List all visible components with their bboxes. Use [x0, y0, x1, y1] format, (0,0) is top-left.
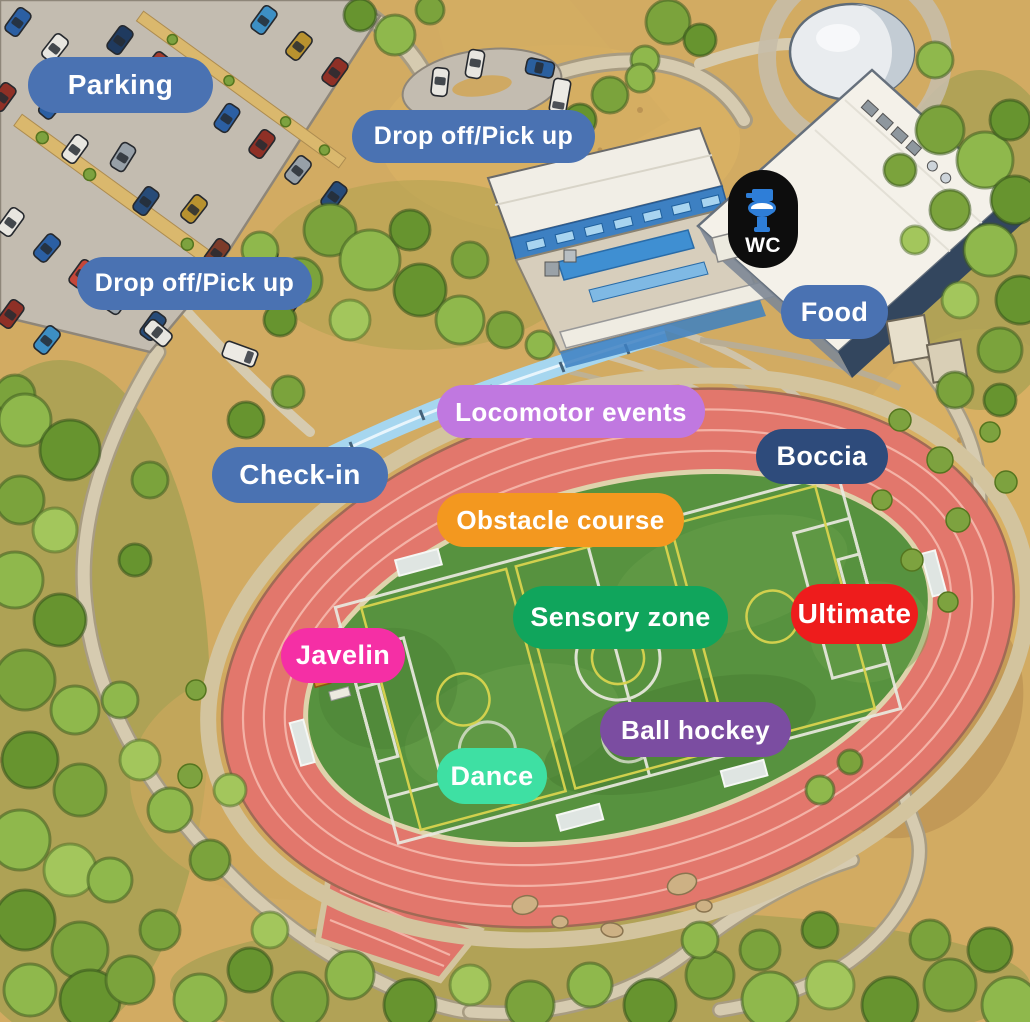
- event-map: Parking Drop off/Pick up Drop off/Pick u…: [0, 0, 1030, 1022]
- label-drop-off-pick-up-top: Drop off/Pick up: [352, 110, 595, 163]
- label-parking: Parking: [28, 57, 213, 113]
- label-parking-text: Parking: [68, 71, 174, 99]
- label-food: Food: [781, 285, 888, 339]
- label-ball-hockey: Ball hockey: [600, 702, 791, 757]
- label-ultimate: Ultimate: [791, 584, 918, 644]
- label-javelin-text: Javelin: [296, 642, 390, 669]
- label-check-in-text: Check-in: [239, 461, 360, 489]
- label-obstacle-course: Obstacle course: [437, 493, 684, 547]
- label-drop-off-pick-up-left-text: Drop off/Pick up: [95, 271, 294, 296]
- label-drop-off-pick-up-top-text: Drop off/Pick up: [374, 124, 573, 149]
- label-javelin: Javelin: [281, 628, 405, 683]
- label-drop-off-pick-up-left: Drop off/Pick up: [77, 257, 312, 310]
- label-boccia: Boccia: [756, 429, 888, 484]
- label-sensory-zone-text: Sensory zone: [530, 604, 710, 631]
- label-food-text: Food: [801, 299, 869, 326]
- label-ball-hockey-text: Ball hockey: [621, 717, 770, 743]
- label-ultimate-text: Ultimate: [798, 600, 912, 628]
- label-obstacle-course-text: Obstacle course: [456, 507, 664, 533]
- label-dance-text: Dance: [450, 763, 533, 790]
- badge-wc: WC: [728, 170, 798, 268]
- label-locomotor-events-text: Locomotor events: [455, 399, 687, 425]
- badge-wc-text: WC: [745, 235, 781, 256]
- label-locomotor-events: Locomotor events: [437, 385, 705, 438]
- label-boccia-text: Boccia: [777, 443, 868, 470]
- label-sensory-zone: Sensory zone: [513, 586, 728, 649]
- toilet-icon: [743, 188, 783, 234]
- label-check-in: Check-in: [212, 447, 388, 503]
- label-dance: Dance: [437, 748, 547, 804]
